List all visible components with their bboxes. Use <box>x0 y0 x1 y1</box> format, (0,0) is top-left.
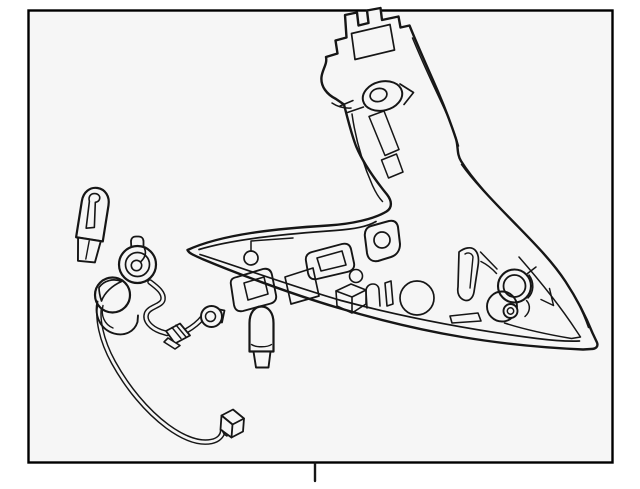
parts-diagram-page <box>0 0 640 489</box>
tail-lamp-diagram <box>0 0 640 489</box>
